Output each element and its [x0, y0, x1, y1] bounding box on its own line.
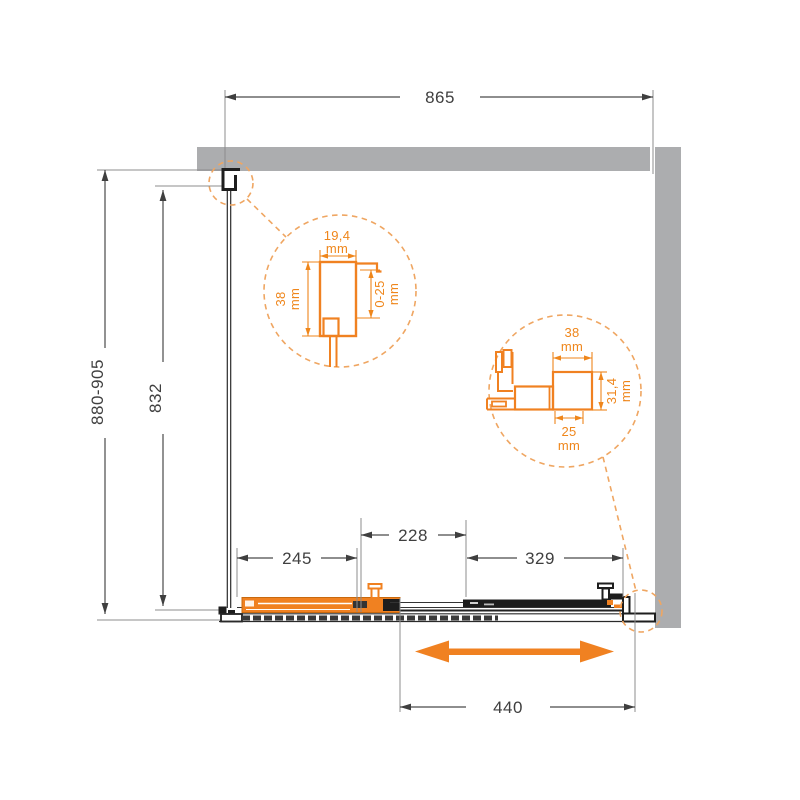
wall-right [655, 147, 681, 628]
arrowhead [368, 270, 373, 278]
arrowhead-left [361, 532, 372, 539]
detail-wall-profile: 19,4 mm 38 mm 0-25 mm [273, 228, 401, 367]
arrowhead [305, 328, 310, 336]
dim-228-label: 228 [398, 526, 428, 545]
top-wall-bracket [223, 170, 240, 190]
detail-rail-profile: 38 mm 25 mm 31,4 mm [487, 325, 633, 453]
arrowhead [584, 355, 592, 360]
arrowhead-left [237, 555, 248, 562]
arrow-head-left [415, 641, 449, 663]
door-roller-orange [607, 600, 613, 605]
slide-direction-arrow [415, 641, 614, 663]
detail-railheight-unit: mm [618, 380, 633, 402]
bottom-corner-profile [221, 614, 242, 622]
arrowhead-top [102, 170, 109, 181]
detail-railwidth-unit: mm [561, 339, 583, 354]
door-detail [484, 604, 494, 606]
dim-glass-832: 832 [146, 186, 222, 610]
dim-245-label: 245 [282, 549, 312, 568]
technical-drawing-svg: 865 880-905 832 [0, 0, 800, 800]
side-glass-panel [219, 170, 243, 622]
arrowhead [553, 355, 561, 360]
door-roller-bracket [610, 594, 623, 600]
arrowhead-left [467, 555, 478, 562]
detail-adjust-value: 0-25 [372, 280, 387, 307]
door-detail [470, 602, 478, 604]
dim-440-label: 440 [493, 698, 523, 717]
arrowhead [368, 310, 373, 318]
profile-inner-square [324, 319, 339, 337]
door-handle-cap [598, 584, 613, 589]
panel-detail [245, 601, 254, 607]
detail-railheight-value: 31,4 [604, 378, 619, 405]
panel-roller [383, 599, 400, 611]
roller-clamp [496, 352, 502, 372]
detail-leader-bottom [603, 457, 636, 591]
arrow-head-right [580, 641, 614, 663]
roller-bracket [498, 372, 513, 391]
right-wall-profile-vertical [623, 597, 630, 614]
detail-offset-value: 25 [561, 424, 576, 439]
fixed-panel-orange [242, 584, 400, 613]
arrowhead [305, 262, 310, 270]
door-body [463, 600, 611, 608]
arrowhead-right [455, 532, 466, 539]
arrowhead-bottom [160, 595, 167, 606]
detail-adjust-unit: mm [386, 283, 401, 305]
dim-865-label: 865 [425, 88, 455, 107]
wall-top [197, 147, 650, 171]
right-wall-profile-base [623, 614, 655, 622]
detail-leader-top [247, 199, 286, 237]
arrowhead [555, 415, 563, 420]
rail-right-box [553, 372, 592, 410]
rail-left-box [515, 387, 553, 410]
arrowhead [575, 415, 583, 420]
drawing-canvas: 865 880-905 832 [0, 0, 800, 800]
arrowhead-bottom [102, 603, 109, 614]
wall-top-strip [197, 147, 650, 171]
wall-right-strip [655, 147, 681, 628]
arrowhead-right [642, 94, 653, 101]
arrowhead [598, 372, 603, 380]
arrowhead-left [400, 704, 411, 711]
fixed-panel-knob-stem [372, 589, 379, 599]
arrowhead-right [346, 555, 357, 562]
arrowhead-left [225, 94, 236, 101]
arrow-shaft [447, 649, 582, 656]
door-handle-stem [603, 589, 610, 600]
arrowhead-right [624, 704, 635, 711]
detail-offset-unit: mm [558, 438, 580, 453]
rail-base-foot [492, 402, 506, 407]
arrowhead-right [612, 555, 623, 562]
detail-depth-value: 38 [273, 291, 288, 306]
arrowhead [348, 253, 356, 258]
arrowhead [598, 402, 603, 410]
arrowhead-top [160, 190, 167, 201]
detail-railwidth-value: 38 [564, 325, 579, 340]
fixed-panel-body [242, 598, 400, 613]
detail-width-unit: mm [326, 241, 348, 256]
dim-door-329: 329 [467, 548, 623, 597]
dim-832-label: 832 [146, 383, 165, 413]
detail-depth-unit: mm [287, 288, 302, 310]
dim-880-905-label: 880-905 [88, 359, 107, 425]
roller-clamp [504, 350, 512, 367]
dim-329-label: 329 [525, 549, 555, 568]
panel-roller [353, 601, 367, 608]
